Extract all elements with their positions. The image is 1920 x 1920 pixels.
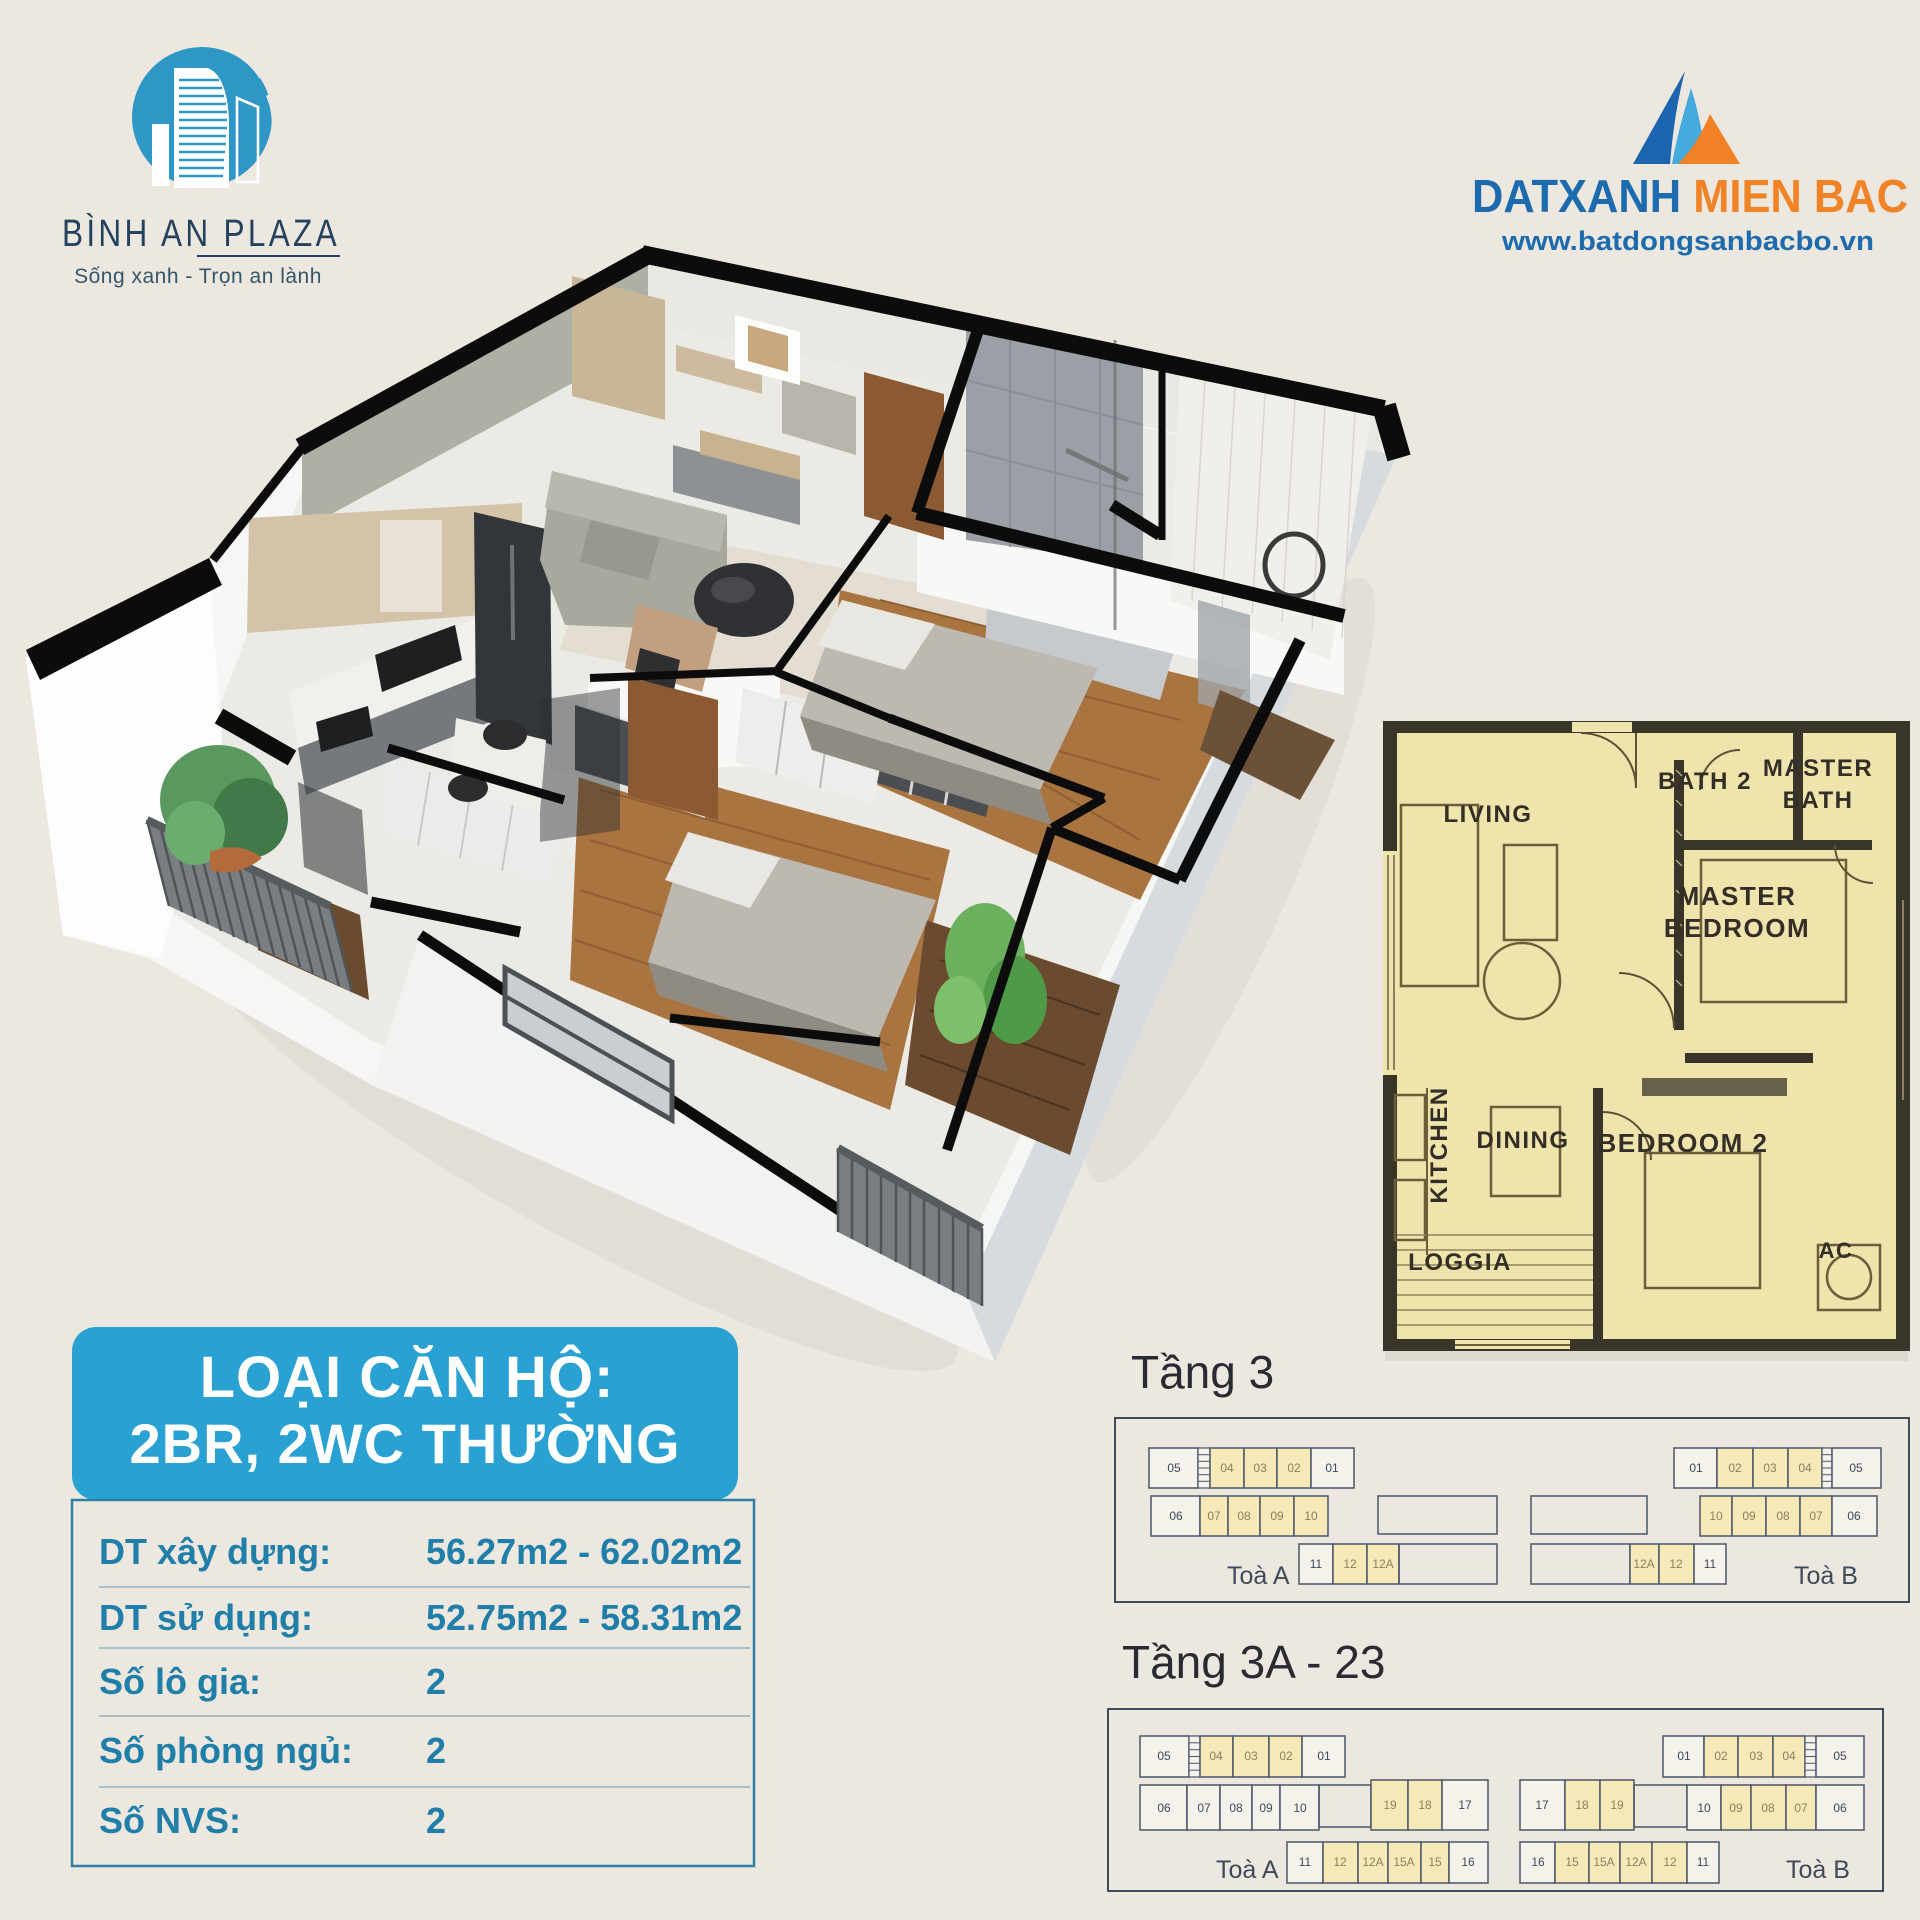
svg-text:02: 02 [1714,1749,1728,1763]
svg-text:15A: 15A [1593,1855,1614,1869]
svg-text:10: 10 [1709,1509,1723,1523]
svg-text:Số lô gia:: Số lô gia: [99,1661,261,1702]
svg-text:02: 02 [1287,1461,1301,1475]
svg-text:BATH: BATH [1783,787,1854,814]
svg-text:2: 2 [426,1730,446,1771]
svg-text:11: 11 [1704,1557,1717,1571]
svg-text:01: 01 [1689,1461,1703,1475]
svg-text:10: 10 [1293,1801,1307,1815]
svg-text:BEDROOM 2: BEDROOM 2 [1598,1128,1769,1158]
svg-text:17: 17 [1535,1798,1549,1812]
svg-text:03: 03 [1763,1461,1777,1475]
svg-text:04: 04 [1798,1461,1812,1475]
svg-text:Sống xanh - Trọn an lành: Sống xanh - Trọn an lành [74,265,322,288]
svg-text:12: 12 [1663,1855,1677,1869]
svg-text:07: 07 [1197,1801,1211,1815]
svg-text:www.batdongsanbacbo.vn: www.batdongsanbacbo.vn [1501,226,1874,256]
svg-text:LIVING: LIVING [1443,801,1532,828]
svg-text:12A: 12A [1633,1557,1654,1571]
svg-text:2: 2 [426,1661,446,1702]
svg-text:MASTER: MASTER [1678,881,1797,911]
svg-text:07: 07 [1809,1509,1823,1523]
svg-text:06: 06 [1169,1509,1183,1523]
svg-text:03: 03 [1253,1461,1267,1475]
svg-text:LOẠI CĂN HỘ:: LOẠI CĂN HỘ: [200,1345,615,1410]
svg-text:08: 08 [1229,1801,1243,1815]
svg-text:52.75m2 - 58.31m2: 52.75m2 - 58.31m2 [426,1597,742,1638]
svg-text:09: 09 [1742,1509,1756,1523]
svg-text:56.27m2 - 62.02m2: 56.27m2 - 62.02m2 [426,1531,742,1572]
svg-text:Toà A: Toà A [1216,1856,1279,1884]
svg-text:11: 11 [1697,1855,1710,1869]
svg-text:07: 07 [1207,1509,1221,1523]
svg-text:18: 18 [1575,1798,1589,1812]
svg-text:BÌNH AN PLAZA: BÌNH AN PLAZA [62,212,340,255]
svg-text:16: 16 [1531,1855,1545,1869]
svg-text:08: 08 [1237,1509,1251,1523]
svg-text:Toà B: Toà B [1794,1562,1858,1590]
svg-text:10: 10 [1697,1801,1711,1815]
svg-text:06: 06 [1157,1801,1171,1815]
svg-text:Số phòng ngủ:: Số phòng ngủ: [99,1730,353,1771]
svg-text:Tầng 3: Tầng 3 [1131,1346,1274,1398]
svg-text:02: 02 [1728,1461,1742,1475]
svg-text:09: 09 [1270,1509,1284,1523]
svg-text:MASTER: MASTER [1763,755,1873,782]
svg-text:19: 19 [1610,1798,1624,1812]
svg-text:01: 01 [1677,1749,1691,1763]
svg-text:08: 08 [1776,1509,1790,1523]
svg-text:15: 15 [1428,1855,1442,1869]
svg-text:09: 09 [1729,1801,1743,1815]
svg-text:01: 01 [1325,1461,1339,1475]
svg-text:04: 04 [1220,1461,1234,1475]
svg-text:09: 09 [1259,1801,1273,1815]
svg-text:12A: 12A [1362,1855,1383,1869]
svg-text:BEDROOM: BEDROOM [1664,913,1810,943]
svg-text:04: 04 [1782,1749,1796,1763]
svg-text:16: 16 [1461,1855,1475,1869]
svg-text:DT sử dụng:: DT sử dụng: [99,1597,313,1638]
svg-text:18: 18 [1418,1798,1432,1812]
svg-text:15A: 15A [1393,1855,1414,1869]
svg-text:05: 05 [1849,1461,1863,1475]
svg-text:05: 05 [1833,1749,1847,1763]
svg-text:AC: AC [1819,1238,1854,1263]
svg-text:Số NVS:: Số NVS: [99,1800,241,1841]
svg-text:05: 05 [1167,1461,1181,1475]
svg-text:12: 12 [1669,1557,1683,1571]
svg-text:02: 02 [1279,1749,1293,1763]
svg-text:KITCHEN: KITCHEN [1426,1086,1453,1203]
svg-text:03: 03 [1244,1749,1258,1763]
svg-text:LOGGIA: LOGGIA [1408,1249,1512,1276]
svg-text:12: 12 [1343,1557,1357,1571]
svg-text:15: 15 [1565,1855,1579,1869]
svg-text:BATH 2: BATH 2 [1658,768,1752,795]
svg-text:04: 04 [1209,1749,1223,1763]
svg-text:12A: 12A [1625,1855,1646,1869]
svg-text:DINING: DINING [1477,1127,1570,1154]
svg-text:10: 10 [1304,1509,1318,1523]
svg-text:Toà A: Toà A [1227,1562,1290,1590]
svg-text:12: 12 [1333,1855,1347,1869]
svg-text:06: 06 [1847,1509,1861,1523]
svg-text:06: 06 [1833,1801,1847,1815]
svg-text:07: 07 [1794,1801,1808,1815]
svg-text:05: 05 [1157,1749,1171,1763]
svg-text:DATXANH MIEN BAC: DATXANH MIEN BAC [1472,170,1908,222]
svg-text:08: 08 [1761,1801,1775,1815]
svg-text:Toà B: Toà B [1786,1856,1850,1884]
svg-text:Tầng 3A - 23: Tầng 3A - 23 [1122,1636,1385,1688]
svg-text:19: 19 [1383,1798,1397,1812]
svg-text:11: 11 [1310,1557,1323,1571]
svg-text:2: 2 [426,1800,446,1841]
svg-text:01: 01 [1317,1749,1331,1763]
svg-text:DT xây dựng:: DT xây dựng: [99,1531,331,1572]
svg-text:17: 17 [1458,1798,1472,1812]
svg-text:2BR, 2WC THƯỜNG: 2BR, 2WC THƯỜNG [129,1412,680,1475]
svg-text:12A: 12A [1372,1557,1393,1571]
svg-text:03: 03 [1749,1749,1763,1763]
svg-text:11: 11 [1299,1855,1312,1869]
